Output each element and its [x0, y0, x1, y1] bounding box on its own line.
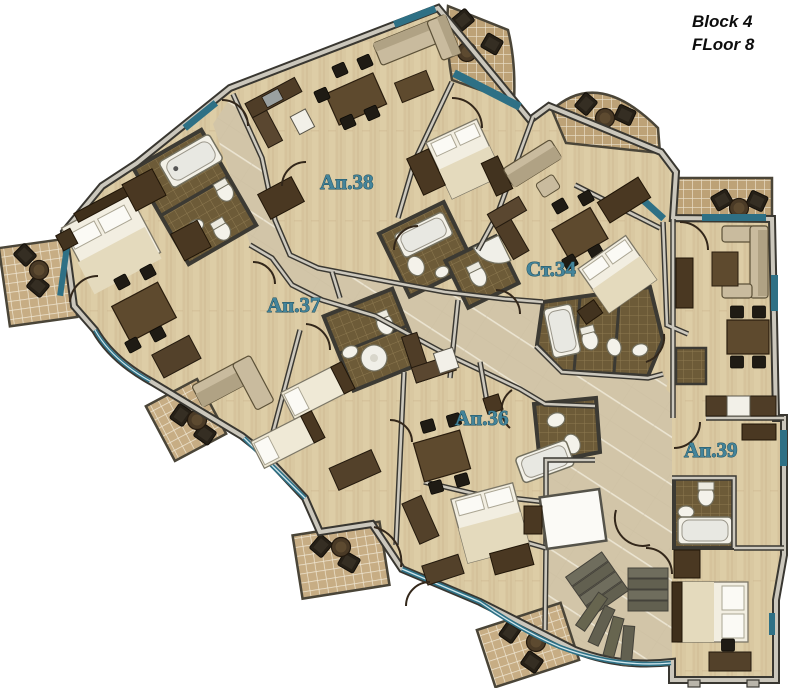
svg-text:Ап.38: Ап.38	[320, 170, 374, 194]
svg-text:FLoor 8: FLoor 8	[692, 35, 755, 54]
svg-text:Ап.37: Ап.37	[267, 293, 321, 317]
svg-text:Block 4: Block 4	[692, 12, 753, 31]
svg-text:Ап.36: Ап.36	[455, 406, 509, 430]
svg-text:Ст.34: Ст.34	[526, 257, 576, 281]
svg-text:Ап.39: Ап.39	[684, 438, 738, 462]
